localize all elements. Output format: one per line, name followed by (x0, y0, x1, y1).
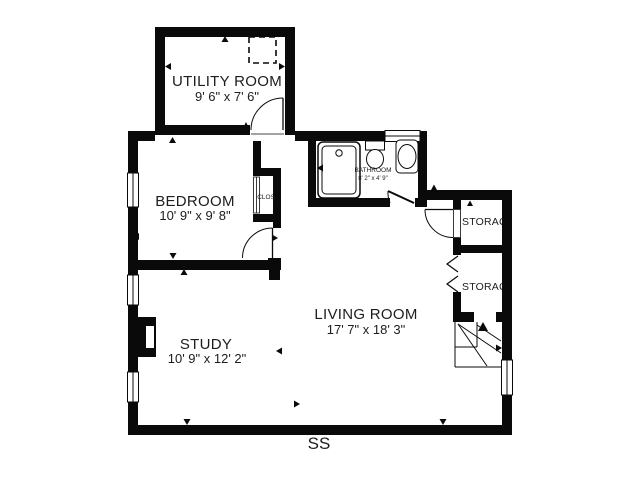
dimension-markers (133, 36, 502, 425)
door-arc-storage (425, 210, 453, 238)
toilet (366, 141, 385, 169)
window (128, 173, 139, 207)
room-label-living: LIVING ROOM 17' 7" x 18' 3" (314, 306, 417, 337)
sink (396, 140, 418, 173)
bifold-door (447, 256, 458, 292)
bathroom-dims: 8' 2" x 4' 9" (358, 176, 388, 182)
bedroom-dims: 10' 9" x 9' 8" (159, 208, 231, 223)
floor-plan: UTILITY ROOM 9' 6" x 7' 6" BEDROOM 10' 9… (0, 0, 640, 480)
bathroom-name: BATHROOM (354, 167, 391, 174)
appliance-dashed-outline (249, 37, 276, 63)
study-dims: 10' 9" x 12' 2" (168, 351, 247, 366)
closet-name: CLOS. (257, 194, 277, 201)
door-arc-bathroom (388, 191, 414, 203)
room-label-closet: CLOS. (257, 194, 277, 201)
window (128, 372, 139, 402)
room-label-study: STUDY 10' 9" x 12' 2" (168, 336, 247, 366)
room-label-utility: UTILITY ROOM 9' 6" x 7' 6" (172, 73, 282, 104)
room-label-bedroom: BEDROOM 10' 9" x 9' 8" (155, 193, 235, 223)
living-room-dims: 17' 7" x 18' 3" (327, 322, 406, 337)
fireplace (136, 317, 156, 357)
storage-cased-opening (454, 210, 461, 238)
utility-room-name: UTILITY ROOM (172, 73, 282, 90)
window (502, 360, 513, 395)
living-room-name: LIVING ROOM (314, 306, 417, 323)
window (128, 275, 139, 305)
stairs (455, 322, 502, 367)
footer-label: SS (308, 434, 331, 453)
door-arc-bedroom (243, 228, 273, 258)
utility-room-dims: 9' 6" x 7' 6" (195, 89, 259, 104)
